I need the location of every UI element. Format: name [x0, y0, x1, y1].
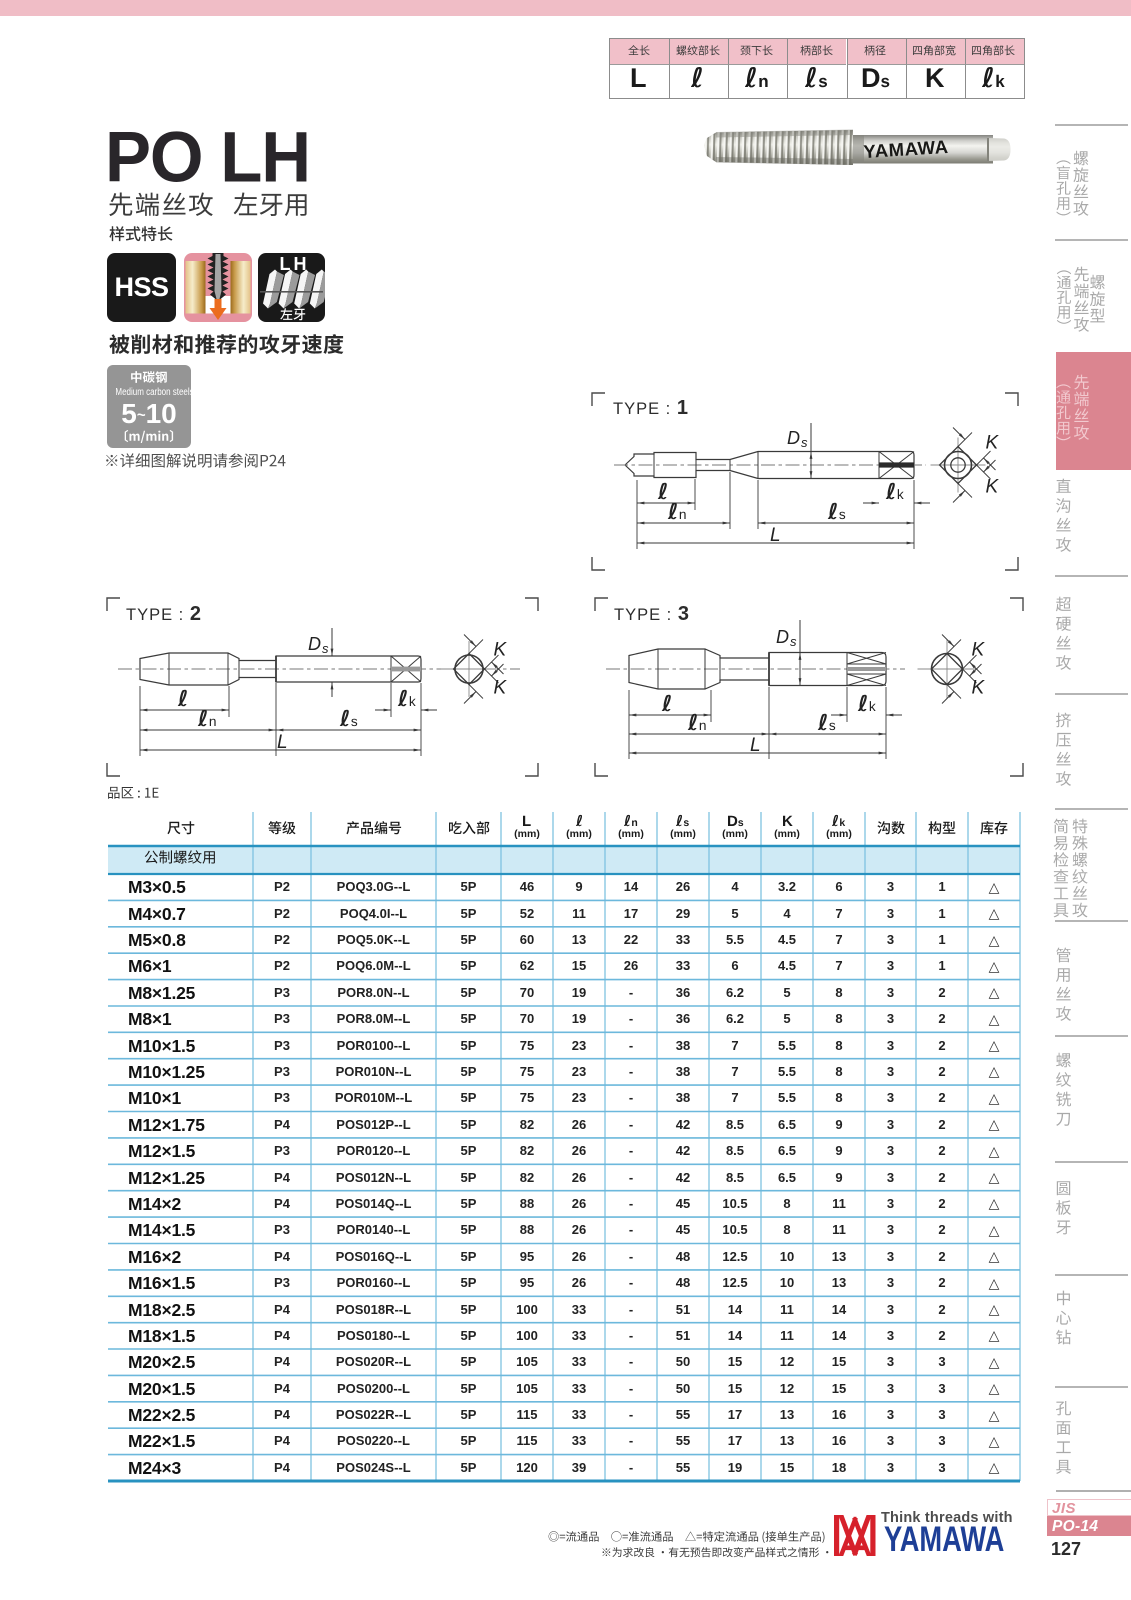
svg-text:D: D [308, 634, 321, 654]
svg-text:s: s [801, 435, 808, 450]
svg-text:K: K [972, 640, 986, 661]
svg-text:K: K [972, 678, 986, 699]
svg-text:L: L [277, 732, 288, 753]
svg-text:K: K [494, 640, 508, 661]
svg-text:K: K [986, 433, 1000, 454]
svg-text:s: s [322, 641, 329, 656]
svg-text:TYPE : 1: TYPE : 1 [613, 397, 689, 419]
svg-text:TYPE : 2: TYPE : 2 [126, 603, 202, 625]
svg-text:K: K [494, 678, 508, 699]
svg-text:D: D [776, 627, 789, 647]
svg-text:s: s [790, 634, 797, 649]
svg-text:K: K [986, 477, 1000, 498]
svg-text:D: D [787, 428, 800, 448]
svg-text:L: L [770, 525, 781, 546]
svg-text:L: L [750, 735, 761, 756]
svg-text:TYPE : 3: TYPE : 3 [614, 603, 690, 625]
